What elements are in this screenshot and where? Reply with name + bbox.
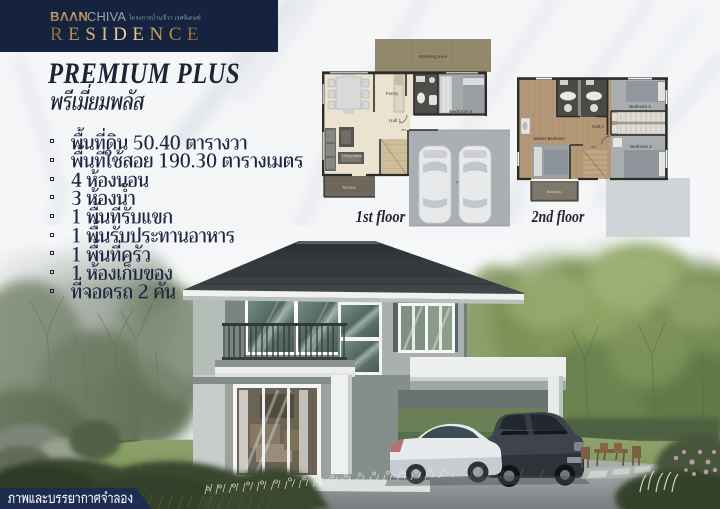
svg-text:BΛΛN: BΛΛN [50,9,88,24]
svg-text:Master Bedroom: Master Bedroom [534,136,565,141]
svg-text:Bedroom 2: Bedroom 2 [630,144,652,149]
svg-text:Terrace: Terrace [342,185,357,190]
svg-text:Hall 2: Hall 2 [592,124,604,129]
svg-text:dn.: dn. [591,145,596,149]
svg-text:Balcony: Balcony [547,189,561,194]
svg-text:RESIDENCE: RESIDENCE [50,24,204,45]
svg-text:Bedroom 3: Bedroom 3 [629,104,651,109]
svg-text:dn.: dn. [401,128,406,132]
svg-text:CHIVA: CHIVA [87,9,126,24]
svg-text:Living area: Living area [342,153,362,158]
svg-text:Washing area: Washing area [419,54,448,59]
svg-text:Pantry: Pantry [386,91,399,96]
